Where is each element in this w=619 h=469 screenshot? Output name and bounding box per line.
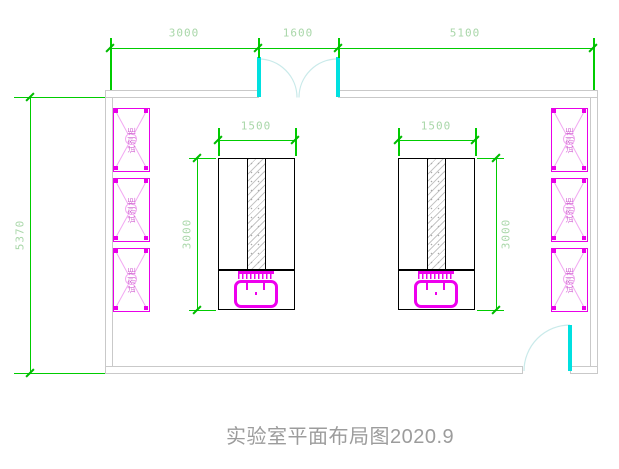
dimension-label: 3000 <box>500 219 513 250</box>
dim-line-leftbench-width <box>218 140 295 142</box>
dimension-label: 5100 <box>450 27 481 40</box>
sink-drop-icon <box>255 292 257 295</box>
dimension-label: 1500 <box>241 120 272 133</box>
sink-tap-icon <box>426 283 428 290</box>
drawing-title: 实验室平面布局图2020.9 <box>226 420 454 449</box>
floorplan-canvas: 3000 1600 5100 5370 1500 3000 1500 3000 … <box>0 0 619 469</box>
reagent-cabinet: 试剂柜 <box>551 248 588 312</box>
dim-line-rightbench-height <box>496 158 498 310</box>
reagent-cabinet: 试剂柜 <box>551 108 588 172</box>
reagent-cabinet: 试剂柜 <box>113 248 150 312</box>
dimension-label: 1500 <box>421 120 452 133</box>
dimension-label: 3000 <box>181 219 194 250</box>
dimension-line-left <box>30 97 32 373</box>
dimension-label: 5370 <box>14 220 27 251</box>
dimension-line-top <box>110 48 593 50</box>
dimension-label: 3000 <box>169 27 200 40</box>
reagent-cabinet: 试剂柜 <box>551 178 588 242</box>
double-door-arc-right <box>299 59 338 98</box>
lab-bench-right <box>398 158 475 310</box>
sink-symbol <box>414 271 458 309</box>
double-door-leaf-left <box>257 57 261 97</box>
reagent-cabinet: 试剂柜 <box>113 178 150 242</box>
cabinet-label: 试剂柜 <box>564 267 575 294</box>
sink-tap-icon <box>246 283 248 290</box>
cabinet-label: 试剂柜 <box>126 197 137 224</box>
lab-bench-left <box>218 158 295 310</box>
dimension-label: 1600 <box>283 27 314 40</box>
dim-ext <box>475 128 477 156</box>
single-door-arc <box>524 325 570 371</box>
cabinet-label: 试剂柜 <box>564 197 575 224</box>
bench-center-channel <box>427 159 446 270</box>
cabinet-label: 试剂柜 <box>126 267 137 294</box>
sink-grille-teeth <box>238 274 274 279</box>
dim-line-rightbench-width <box>398 140 475 142</box>
sink-tap-icon <box>443 283 445 290</box>
dim-ext <box>477 310 504 312</box>
bench-center-channel <box>247 159 266 270</box>
sink-grille-teeth <box>418 274 454 279</box>
single-door-leaf <box>568 325 572 371</box>
sink-drop-icon <box>435 292 437 295</box>
dim-line-leftbench-height <box>197 158 199 310</box>
dim-ext <box>218 128 220 156</box>
sink-tap-icon <box>263 283 265 290</box>
dim-ext <box>477 158 504 160</box>
double-door-leaf-right <box>336 57 340 97</box>
sink-symbol <box>234 271 278 309</box>
cabinet-label: 试剂柜 <box>564 127 575 154</box>
door-arcs-layer <box>0 0 619 469</box>
double-door-arc-left <box>259 59 298 98</box>
dim-ext <box>398 128 400 156</box>
dim-ext <box>295 128 297 156</box>
reagent-cabinet: 试剂柜 <box>113 108 150 172</box>
cabinet-label: 试剂柜 <box>126 127 137 154</box>
